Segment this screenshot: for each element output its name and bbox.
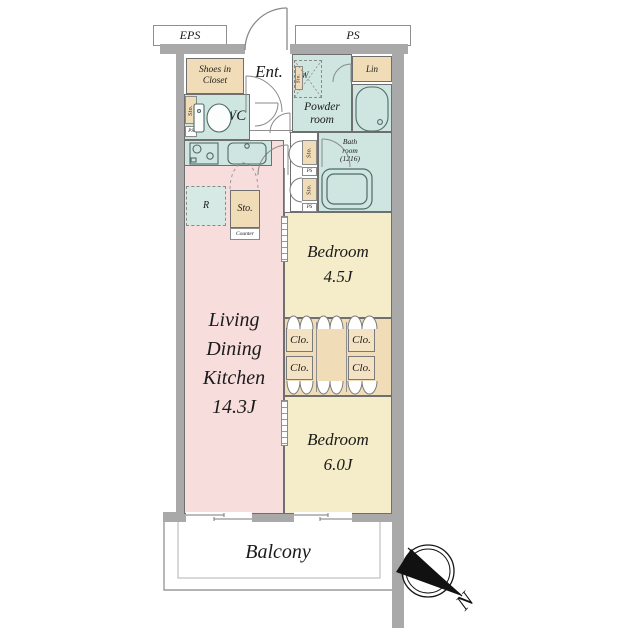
sliding-door-bedroom-4-5 [281,216,288,262]
ps-label: PS [346,29,359,43]
ldk-size: 14.3J [212,393,256,422]
sliding-door-bedroom-6-0 [281,400,288,446]
storage-ps-tag-2: PS [302,203,317,212]
bath-room-label: Bath room (1216) [330,135,370,167]
storage-ps-tag-1: PS [302,167,317,176]
room-shoes-closet: Shoes in Closet [186,58,244,94]
lin-label: Lin [366,64,378,74]
floor-plan: EPS PS Ent. Shoes in Closet WC Sto. PS L… [0,0,640,640]
eps-duct: EPS [153,25,227,46]
bedroom-4-5-label: Bedroom 4.5J [290,238,386,290]
kitchen-counter-tag: Counter [230,228,260,240]
ps-duct: PS [295,25,411,46]
closet-box-2: Clo. [348,328,375,352]
washer-sto-tag: Sto. [295,66,303,90]
linen-closet: Lin [352,56,392,82]
entrance-door [245,8,287,50]
kitchen-sto-box: Sto. [230,190,260,228]
closet-box-1: Clo. [286,328,313,352]
wc-label: WC [222,106,248,128]
compass-needle [396,549,462,596]
closet-box-3: Clo. [286,356,313,380]
eps-label: EPS [180,29,201,43]
bedroom-4-5-size: 4.5J [324,264,353,290]
bedroom-6-0-size: 6.0J [324,452,353,478]
wall-right [392,44,404,628]
bedroom-6-0-label: Bedroom 6.0J [290,426,386,478]
wall-bottom-1 [163,512,186,522]
compass-needle-line [408,548,462,596]
compass: N [396,545,480,616]
storage-sto-tag-2: Sto. [302,178,317,201]
north-label: N [450,586,480,615]
ldk-label: Living Dining Kitchen 14.3J [188,304,280,424]
wall-left [176,44,184,522]
storage-sto-tag-1: Sto. [302,140,317,165]
fridge-space: R [186,186,226,226]
wall-top-right [290,44,408,54]
closet-box-4: Clo. [348,356,375,380]
wc-ps-tag: PS [185,126,197,137]
wall-top-left [160,44,245,54]
kitchen-counter [184,140,272,166]
wall-stub-hall [284,168,285,212]
powder-room-label: Powder room [294,98,350,130]
entrance-label: Ent. [248,60,290,84]
wc-sto-tag: Sto. [185,96,197,124]
closet-mid-line-right [346,322,347,392]
balcony-label: Balcony [228,538,328,566]
shoes-closet-label-1: Shoes in [199,65,231,76]
room-powder-vanity-area [352,84,392,132]
entrance-step-line [244,130,292,131]
closet-mid-line-left [316,322,317,392]
shoes-closet-label-2: Closet [203,76,227,87]
